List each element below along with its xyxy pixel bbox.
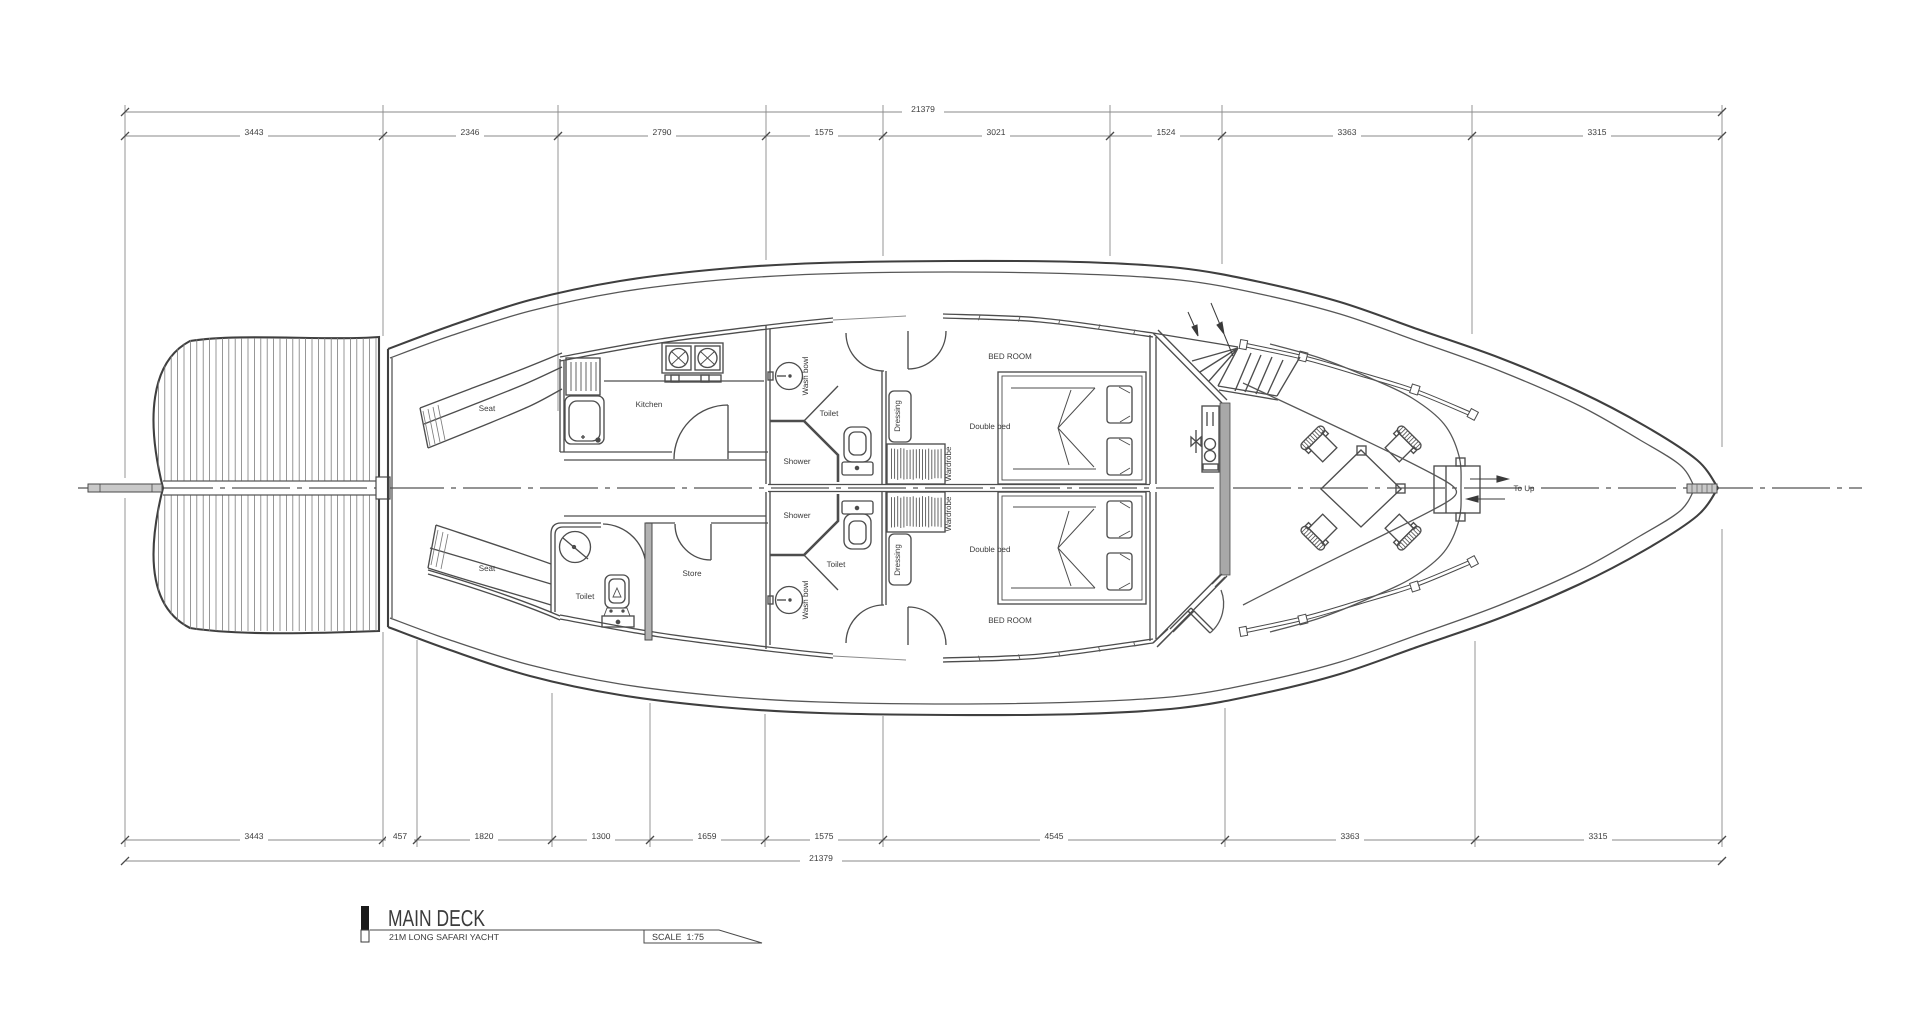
svg-text:Toilet: Toilet <box>576 592 595 601</box>
svg-text:1575: 1575 <box>815 127 834 137</box>
svg-text:Wash bowl: Wash bowl <box>801 580 810 619</box>
svg-text:3021: 3021 <box>987 127 1006 137</box>
svg-text:1524: 1524 <box>1157 127 1176 137</box>
svg-text:21M LONG SAFARI YACHT: 21M LONG SAFARI YACHT <box>389 932 499 942</box>
svg-text:Double bed: Double bed <box>970 422 1011 431</box>
svg-text:Kitchen: Kitchen <box>636 400 663 409</box>
svg-text:Wardrobe: Wardrobe <box>944 496 953 531</box>
svg-text:Dressing: Dressing <box>893 400 902 432</box>
svg-text:3443: 3443 <box>245 831 264 841</box>
svg-text:3363: 3363 <box>1341 831 1360 841</box>
svg-text:Store: Store <box>682 569 702 578</box>
svg-text:Seat: Seat <box>479 564 496 573</box>
svg-text:2346: 2346 <box>461 127 480 137</box>
svg-text:1659: 1659 <box>698 831 717 841</box>
svg-text:Wash bowl: Wash bowl <box>801 356 810 395</box>
svg-text:1300: 1300 <box>592 831 611 841</box>
svg-text:1575: 1575 <box>815 831 834 841</box>
svg-text:4545: 4545 <box>1045 831 1064 841</box>
svg-text:3443: 3443 <box>245 127 264 137</box>
svg-text:SCALE 1:75: SCALE 1:75 <box>652 932 704 942</box>
svg-text:MAIN DECK: MAIN DECK <box>388 905 485 931</box>
svg-text:3315: 3315 <box>1589 831 1608 841</box>
svg-text:Shower: Shower <box>783 511 810 520</box>
svg-text:BED ROOM: BED ROOM <box>988 352 1032 361</box>
svg-text:3315: 3315 <box>1588 127 1607 137</box>
svg-text:21379: 21379 <box>911 104 935 114</box>
svg-text:Wardrobe: Wardrobe <box>944 446 953 481</box>
svg-text:Shower: Shower <box>783 457 810 466</box>
svg-text:Toilet: Toilet <box>827 560 846 569</box>
svg-text:To Up: To Up <box>1514 484 1535 493</box>
svg-text:Seat: Seat <box>479 404 496 413</box>
svg-text:Toilet: Toilet <box>820 409 839 418</box>
svg-text:3363: 3363 <box>1338 127 1357 137</box>
svg-text:Double bed: Double bed <box>970 545 1011 554</box>
svg-text:Dressing: Dressing <box>893 544 902 576</box>
svg-text:2790: 2790 <box>653 127 672 137</box>
svg-text:21379: 21379 <box>809 853 833 863</box>
svg-text:1820: 1820 <box>475 831 494 841</box>
svg-text:457: 457 <box>393 831 407 841</box>
svg-text:BED ROOM: BED ROOM <box>988 616 1032 625</box>
